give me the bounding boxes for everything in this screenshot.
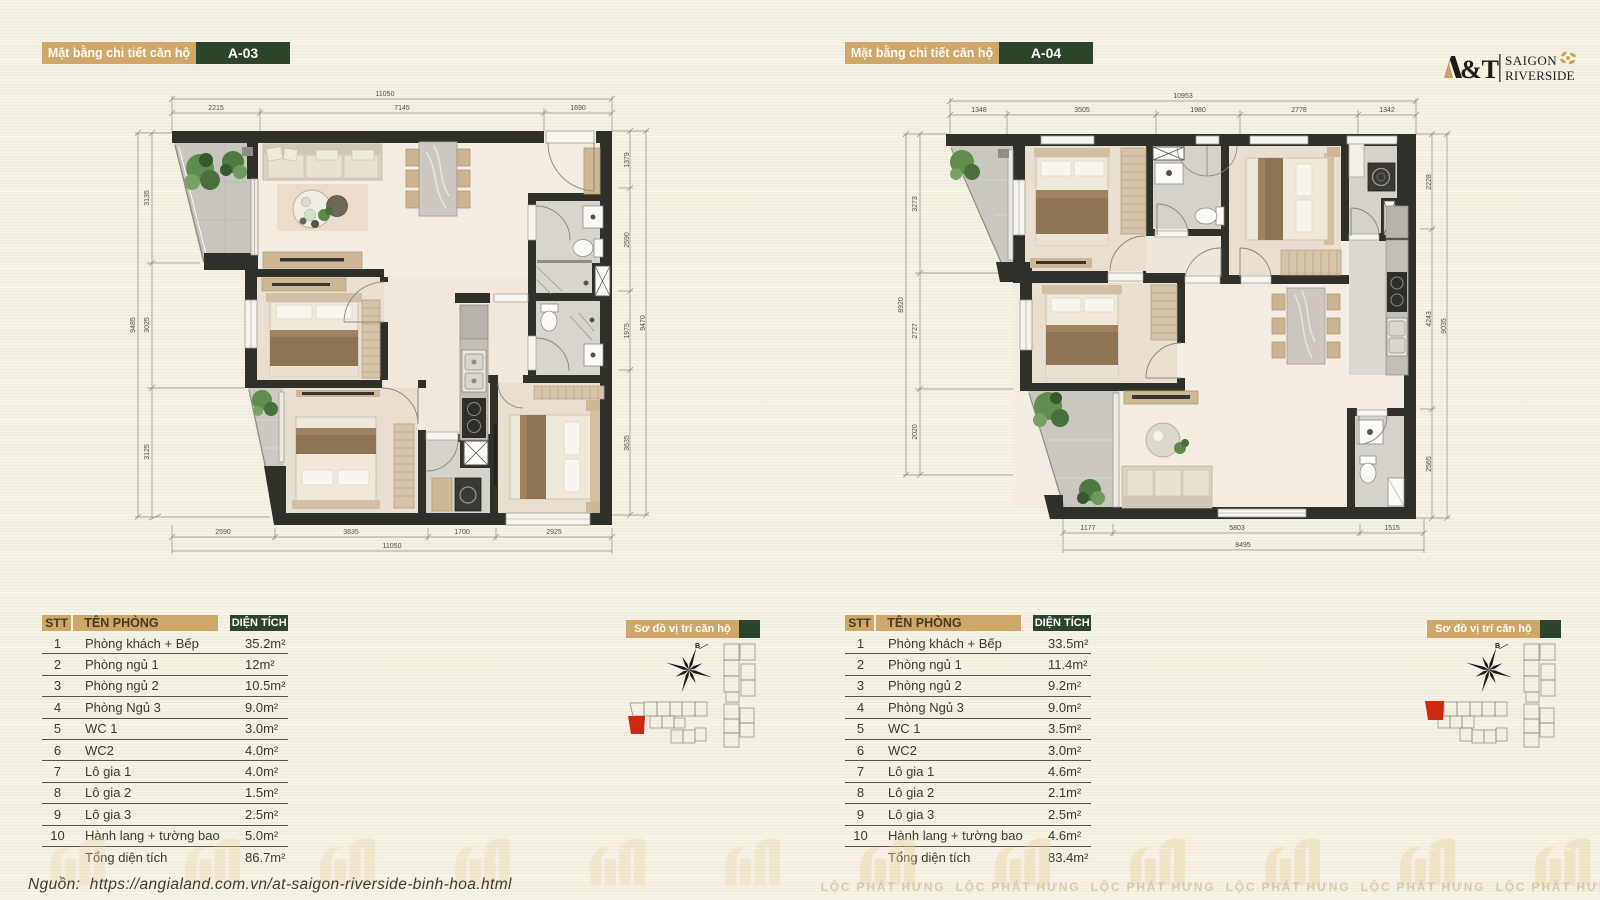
svg-text:1700: 1700 (454, 529, 470, 536)
svg-text:5803: 5803 (1229, 525, 1245, 532)
svg-text:2925: 2925 (546, 529, 562, 536)
svg-text:3025: 3025 (144, 317, 151, 333)
svg-text:SAIGON: SAIGON (1505, 53, 1557, 68)
svg-text:&T: &T (1460, 55, 1499, 84)
svg-text:2228: 2228 (1426, 174, 1433, 190)
svg-text:10953: 10953 (1173, 93, 1193, 100)
svg-text:LỘC PHÁT HƯNG: LỘC PHÁT HƯNG (1496, 879, 1600, 894)
svg-text:4243: 4243 (1426, 311, 1433, 327)
svg-text:1515: 1515 (1384, 525, 1400, 532)
svg-text:LỘC PHÁT HƯNG: LỘC PHÁT HƯNG (1091, 879, 1216, 894)
svg-text:11050: 11050 (383, 543, 402, 550)
svg-text:1348: 1348 (971, 107, 987, 114)
svg-text:1975: 1975 (624, 323, 631, 339)
svg-text:2215: 2215 (208, 105, 224, 112)
svg-text:RIVERSIDE: RIVERSIDE (1505, 68, 1575, 83)
svg-text:LỘC PHÁT HƯNG: LỘC PHÁT HƯNG (956, 879, 1081, 894)
svg-text:LỘC PHÁT HƯNG: LỘC PHÁT HƯNG (1361, 879, 1486, 894)
svg-text:8920: 8920 (898, 297, 905, 313)
svg-text:LỘC PHÁT HƯNG: LỘC PHÁT HƯNG (1226, 879, 1351, 894)
svg-text:9470: 9470 (640, 315, 647, 331)
svg-text:2565: 2565 (1426, 456, 1433, 472)
svg-text:2020: 2020 (912, 424, 919, 440)
svg-text:3835: 3835 (343, 529, 359, 536)
svg-text:1177: 1177 (1080, 525, 1095, 532)
svg-text:11050: 11050 (376, 91, 395, 98)
svg-text:3505: 3505 (1074, 107, 1090, 114)
svg-text:3135: 3135 (144, 190, 151, 206)
svg-text:2778: 2778 (1291, 107, 1307, 114)
svg-text:2590: 2590 (215, 529, 231, 536)
svg-text:3635: 3635 (624, 435, 631, 451)
svg-text:2727: 2727 (912, 323, 919, 339)
svg-text:1379: 1379 (624, 152, 631, 168)
svg-text:9485: 9485 (130, 317, 137, 333)
svg-text:LỘC PHÁT HƯNG: LỘC PHÁT HƯNG (821, 879, 946, 894)
svg-text:1342: 1342 (1379, 107, 1395, 114)
svg-text:1690: 1690 (570, 105, 586, 112)
svg-text:9035: 9035 (1441, 318, 1448, 334)
svg-text:2590: 2590 (624, 232, 631, 248)
svg-text:3273: 3273 (912, 196, 919, 212)
svg-text:1980: 1980 (1190, 107, 1206, 114)
svg-text:7145: 7145 (394, 105, 410, 112)
svg-text:3125: 3125 (144, 444, 151, 460)
svg-text:8495: 8495 (1235, 542, 1251, 549)
